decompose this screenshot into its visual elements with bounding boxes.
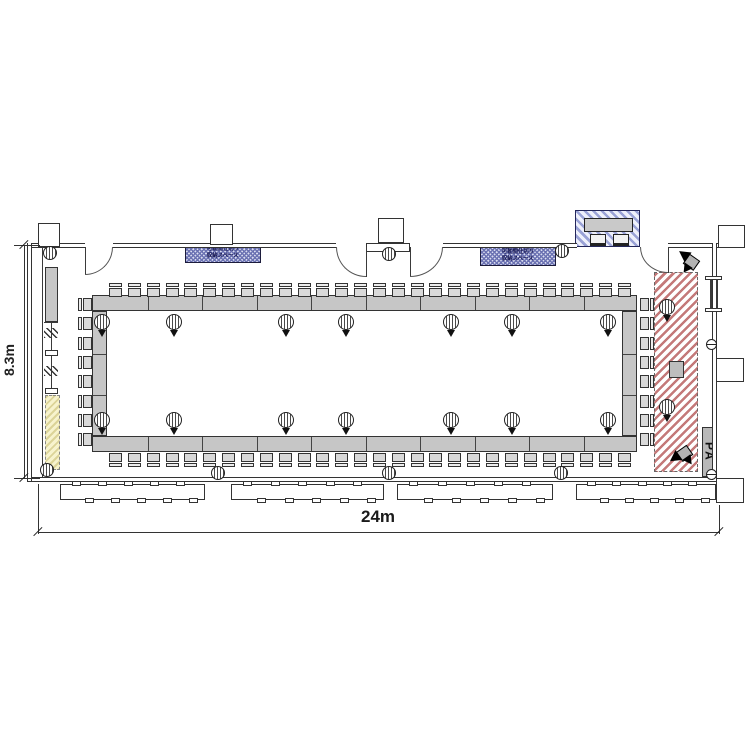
chair (78, 414, 92, 427)
chair-back (505, 463, 518, 467)
radiator-tick (480, 498, 489, 503)
chair-seat (260, 453, 273, 462)
table-divider (623, 354, 636, 355)
chair-back (222, 283, 235, 287)
chair-back (650, 375, 654, 388)
chair-seat (561, 453, 574, 462)
chair-seat (618, 453, 631, 462)
chair-back (650, 414, 654, 427)
chair (222, 453, 235, 467)
chair-back (78, 317, 82, 330)
partition-hatch (44, 366, 58, 376)
chair (580, 283, 593, 297)
chair (147, 283, 160, 297)
table-divider (584, 296, 585, 310)
floor-uplight-base (663, 415, 671, 422)
chair-seat (354, 453, 367, 462)
equipment-box (669, 361, 684, 378)
floor-uplight (166, 412, 182, 428)
chair (505, 283, 518, 297)
chair (411, 283, 424, 297)
floor-uplight-base (604, 428, 612, 435)
storage-cabinet (45, 267, 58, 322)
door-leaf (366, 247, 367, 277)
chair (279, 453, 292, 467)
radiator-tick (452, 498, 461, 503)
chair (109, 283, 122, 297)
table-divider (529, 296, 530, 310)
radiator-tick (150, 481, 159, 486)
chair (640, 395, 654, 408)
chair-back (543, 463, 556, 467)
chair-seat (241, 453, 254, 462)
partition-label-line1: 可動間仕切り (502, 249, 534, 255)
chair-seat (83, 395, 92, 408)
chair-back (411, 283, 424, 287)
chair (78, 298, 92, 311)
floor-uplight-base (342, 428, 350, 435)
chair (241, 283, 254, 297)
chair-back (561, 283, 574, 287)
chair (505, 453, 518, 467)
table-divider (148, 296, 149, 310)
chair-back (109, 463, 122, 467)
chair-seat (561, 288, 574, 297)
radiator-tick (353, 481, 362, 486)
dimension-label-height: 8.3m (1, 322, 18, 398)
chair-seat (109, 288, 122, 297)
chair (392, 453, 405, 467)
chair-seat (83, 317, 92, 330)
chair-back (411, 463, 424, 467)
chair-seat (279, 288, 292, 297)
chair-back (448, 463, 461, 467)
radiator-tick (298, 481, 307, 486)
floor-plan: 可動間仕切り 収納スペース 可動間仕切り 収納スペース PA 8.3m 24m (0, 0, 750, 750)
chair-seat (467, 288, 480, 297)
chair-back (467, 283, 480, 287)
table-divider (366, 437, 367, 451)
chair (561, 453, 574, 467)
radiator-tick (494, 481, 503, 486)
chair-seat (543, 453, 556, 462)
floor-uplight-base (447, 428, 455, 435)
chair (78, 395, 92, 408)
chair-seat (640, 337, 649, 350)
chair (640, 433, 654, 446)
column-pilaster (210, 224, 233, 245)
radiator-tick (257, 498, 266, 503)
floor-uplight-base (170, 330, 178, 337)
chair-back (166, 463, 179, 467)
door-leaf (668, 247, 669, 273)
chair-back (78, 337, 82, 350)
chair-back (467, 463, 480, 467)
partition-bar (45, 350, 58, 356)
chair (524, 453, 537, 467)
floor-uplight-base (282, 428, 290, 435)
table-divider (420, 296, 421, 310)
table-divider (93, 395, 106, 396)
table-divider (93, 354, 106, 355)
dimension-extension (14, 245, 40, 246)
chair (78, 337, 92, 350)
chair (260, 453, 273, 467)
chair-back (505, 283, 518, 287)
ceiling-light (43, 246, 57, 260)
chair-back (184, 463, 197, 467)
chair-back (241, 283, 254, 287)
floor-uplight-base (282, 330, 290, 337)
radiator-tick (243, 481, 252, 486)
chair-back (486, 463, 499, 467)
chair-seat (640, 395, 649, 408)
reception-chair (613, 234, 629, 246)
radiator-tick (98, 481, 107, 486)
chair (184, 453, 197, 467)
chair-seat (486, 288, 499, 297)
chair (354, 453, 367, 467)
floor-uplight (659, 299, 675, 315)
chair-back (580, 463, 593, 467)
radiator-tick (663, 481, 672, 486)
chair-back (147, 463, 160, 467)
chair (166, 283, 179, 297)
floor-uplight-base (98, 330, 106, 337)
ceiling-light (554, 466, 568, 480)
screw-symbol (706, 469, 717, 480)
chair-seat (298, 453, 311, 462)
chair-seat (335, 453, 348, 462)
chair-back (650, 395, 654, 408)
chair-back (599, 463, 612, 467)
chair (543, 283, 556, 297)
chair-seat (448, 288, 461, 297)
chair-back (650, 337, 654, 350)
radiator-tick (271, 481, 280, 486)
door-arc (85, 247, 113, 275)
chair (486, 453, 499, 467)
chair (411, 453, 424, 467)
chair (203, 283, 216, 297)
chair-seat (316, 288, 329, 297)
chair-seat (184, 453, 197, 462)
chair-seat (83, 337, 92, 350)
chair (128, 283, 141, 297)
chair (580, 453, 593, 467)
chair-back (128, 283, 141, 287)
chair (335, 283, 348, 297)
chair (561, 283, 574, 297)
radiator-tick (466, 481, 475, 486)
chair-back (650, 317, 654, 330)
chair (640, 375, 654, 388)
ceiling-light (211, 466, 225, 480)
chair-seat (392, 453, 405, 462)
radiator (397, 484, 553, 500)
reception-chair (590, 234, 606, 246)
chair-back (78, 395, 82, 408)
radiator-tick (650, 498, 659, 503)
chair-seat (203, 288, 216, 297)
radiator-tick (176, 481, 185, 486)
chair (260, 283, 273, 297)
chair-seat (392, 288, 405, 297)
chair (203, 453, 216, 467)
chair-back (78, 414, 82, 427)
chair-back (279, 283, 292, 287)
floor-uplight (504, 314, 520, 330)
table-divider (257, 437, 258, 451)
floor-uplight-base (170, 428, 178, 435)
chair (640, 356, 654, 369)
chair-back (580, 283, 593, 287)
column-pilaster (716, 478, 744, 503)
dimension-line-width (38, 532, 719, 533)
chair-seat (505, 288, 518, 297)
radiator-tick (312, 498, 321, 503)
chair-back (78, 298, 82, 311)
ceiling-light (382, 247, 396, 261)
chair-back (128, 463, 141, 467)
chair (298, 453, 311, 467)
chair-back (222, 463, 235, 467)
chair (316, 283, 329, 297)
chair-back (109, 283, 122, 287)
chair-back (166, 283, 179, 287)
chair (640, 298, 654, 311)
radiator-tick (688, 481, 697, 486)
chair-back (650, 298, 654, 311)
floor-uplight (338, 314, 354, 330)
chair-seat (411, 453, 424, 462)
chair-seat (128, 288, 141, 297)
table-divider (529, 437, 530, 451)
chair-back (373, 283, 386, 287)
floor-uplight (166, 314, 182, 330)
chair-seat (640, 414, 649, 427)
chair-back (335, 463, 348, 467)
chair-seat (166, 453, 179, 462)
chair-back (78, 375, 82, 388)
floor-uplight (659, 399, 675, 415)
chair (599, 283, 612, 297)
partition-storage-label: 可動間仕切り 収納スペース (480, 246, 556, 266)
chair-back (486, 283, 499, 287)
banquet-table (622, 311, 637, 436)
chair-seat (640, 356, 649, 369)
chair (467, 453, 480, 467)
chair (109, 453, 122, 467)
chair-back (543, 283, 556, 287)
chair-back (241, 463, 254, 467)
ladder-rail (710, 279, 712, 309)
chair-seat (448, 453, 461, 462)
table-divider (257, 296, 258, 310)
radiator-tick (111, 498, 120, 503)
table-divider (623, 395, 636, 396)
dimension-line-height (24, 245, 25, 478)
chair-back (650, 433, 654, 446)
floor-uplight (443, 314, 459, 330)
column-pilaster (38, 223, 60, 247)
floor-uplight (600, 314, 616, 330)
table-divider (584, 437, 585, 451)
chair-back (599, 283, 612, 287)
radiator-tick (675, 498, 684, 503)
chair-back (147, 283, 160, 287)
chair-back (279, 463, 292, 467)
chair-back (429, 283, 442, 287)
floor-uplight-base (604, 330, 612, 337)
chair-seat (83, 298, 92, 311)
chair-seat (222, 288, 235, 297)
radiator-tick (163, 498, 172, 503)
floor-uplight-base (447, 330, 455, 337)
reception-desk-zone (575, 210, 640, 247)
floor-uplight (94, 412, 110, 428)
chair (467, 283, 480, 297)
radiator-tick (326, 481, 335, 486)
chair-seat (335, 288, 348, 297)
chair-back (429, 463, 442, 467)
chair-back (650, 356, 654, 369)
chair (429, 283, 442, 297)
ladder-bar (705, 308, 722, 312)
radiator-tick (124, 481, 133, 486)
chair-seat (543, 288, 556, 297)
chair-seat (599, 453, 612, 462)
chair-seat (429, 453, 442, 462)
chair-seat (373, 453, 386, 462)
chair-seat (524, 288, 537, 297)
table-divider (420, 437, 421, 451)
chair-back (78, 433, 82, 446)
radiator-tick (438, 481, 447, 486)
chair-back (316, 463, 329, 467)
chair (184, 283, 197, 297)
chair-seat (640, 375, 649, 388)
radiator-tick (340, 498, 349, 503)
floor-uplight-base (342, 330, 350, 337)
chair-seat (640, 298, 649, 311)
chair-seat (467, 453, 480, 462)
chair-back (335, 283, 348, 287)
chair-seat (524, 453, 537, 462)
chair-seat (354, 288, 367, 297)
chair-back (298, 463, 311, 467)
radiator-tick (638, 481, 647, 486)
chair-seat (429, 288, 442, 297)
chair-back (448, 283, 461, 287)
radiator (60, 484, 205, 500)
chair (316, 453, 329, 467)
chair (78, 317, 92, 330)
radiator-tick (137, 498, 146, 503)
radiator-tick (409, 481, 418, 486)
radiator-tick (536, 498, 545, 503)
chair (524, 283, 537, 297)
chair (486, 283, 499, 297)
chair (354, 283, 367, 297)
chair-seat (373, 288, 386, 297)
ladder-bar (705, 276, 722, 280)
floor-uplight-base (508, 330, 516, 337)
radiator-tick (189, 498, 198, 503)
chair-back (316, 283, 329, 287)
chair-seat (109, 453, 122, 462)
chair-back (354, 283, 367, 287)
radiator-tick (701, 498, 710, 503)
chair (618, 283, 631, 297)
chair-seat (83, 433, 92, 446)
partition-bar (45, 388, 58, 394)
chair-seat (279, 453, 292, 462)
chair-back (618, 463, 631, 467)
chair (618, 453, 631, 467)
chair (640, 337, 654, 350)
chair-seat (203, 453, 216, 462)
column-pilaster (718, 225, 745, 248)
partition-label-line2: 収納スペース (502, 256, 534, 262)
chair-seat (618, 288, 631, 297)
floor-uplight (443, 412, 459, 428)
chair-back (618, 283, 631, 287)
radiator-tick (72, 481, 81, 486)
chair-seat (83, 375, 92, 388)
table-divider (366, 296, 367, 310)
chair-back (260, 283, 273, 287)
chair-seat (147, 453, 160, 462)
chair-seat (184, 288, 197, 297)
dimension-extension (14, 478, 40, 479)
yellow-equipment-zone (45, 395, 60, 470)
floor-uplight (600, 412, 616, 428)
chair-seat (83, 356, 92, 369)
floor-uplight (278, 314, 294, 330)
chair (640, 317, 654, 330)
ceiling-light (382, 466, 396, 480)
chair (543, 453, 556, 467)
door-arc (640, 247, 668, 273)
chair-seat (486, 453, 499, 462)
radiator-tick (85, 498, 94, 503)
chair (279, 283, 292, 297)
floor-uplight-base (98, 428, 106, 435)
chair-back (392, 283, 405, 287)
chair-seat (411, 288, 424, 297)
chair (429, 453, 442, 467)
chair-back (524, 283, 537, 287)
chair (599, 453, 612, 467)
chair (392, 283, 405, 297)
chair-seat (505, 453, 518, 462)
chair (373, 283, 386, 297)
radiator (231, 484, 384, 500)
table-divider (202, 437, 203, 451)
floor-uplight (504, 412, 520, 428)
chair (78, 433, 92, 446)
chair-seat (128, 453, 141, 462)
radiator-tick (587, 481, 596, 486)
chair (448, 453, 461, 467)
wall-segment (27, 243, 32, 481)
table-divider (475, 296, 476, 310)
radiator-tick (367, 498, 376, 503)
table-divider (311, 296, 312, 310)
chair-seat (580, 288, 593, 297)
ladder-rail (716, 279, 718, 309)
